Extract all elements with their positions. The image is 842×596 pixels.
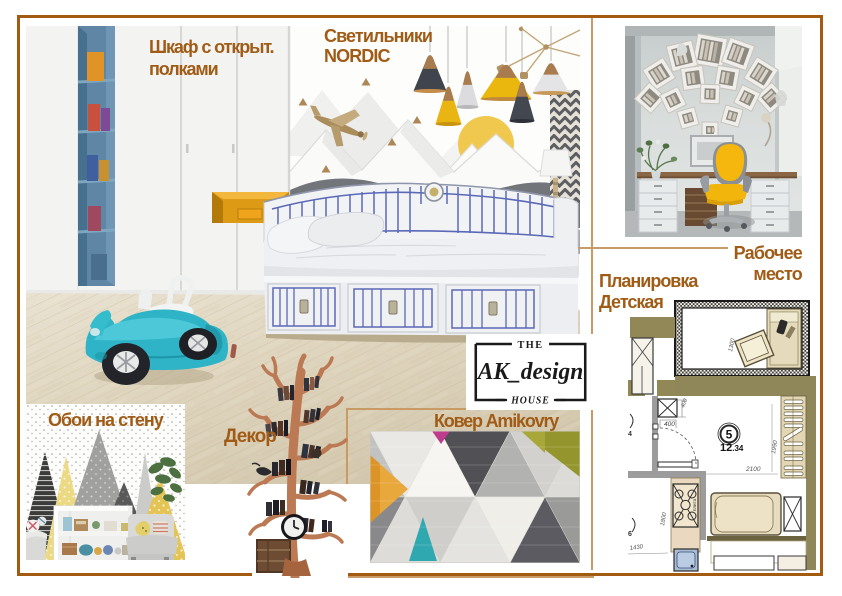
svg-text:2100: 2100 [745,466,761,473]
svg-text:4: 4 [628,431,632,438]
svg-text:1800: 1800 [660,512,668,527]
svg-text:400: 400 [664,421,675,428]
svg-text:THE: THE [517,340,543,351]
svg-text:12.34: 12.34 [720,442,744,454]
svg-text:5: 5 [726,428,733,442]
svg-text:HOUSE: HOUSE [510,395,550,406]
svg-text:6: 6 [628,531,632,538]
svg-text:1430: 1430 [629,544,644,552]
svg-text:AK_design: AK_design [476,359,584,385]
svg-text:плита: плита [692,498,697,511]
